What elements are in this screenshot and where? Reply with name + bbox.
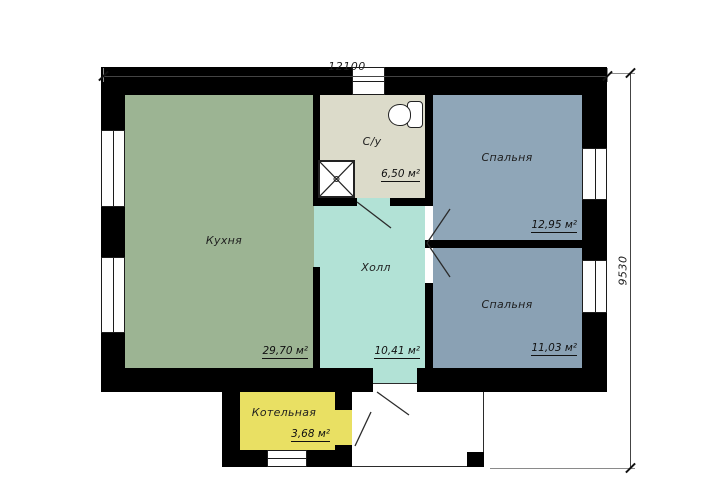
- door-swing-hall-entrance: [377, 392, 409, 415]
- wall-hall-bedrooms-lower: [425, 283, 433, 368]
- dimension-width: 12100: [307, 60, 387, 73]
- wall-bedroom-divider: [425, 240, 607, 248]
- door-swing-boiler: [355, 412, 371, 446]
- window-left-1: [101, 130, 125, 207]
- wall-bathroom-bottom-b: [390, 198, 433, 206]
- window-right-1: [582, 148, 607, 200]
- area-kitchen: 29,70 м²: [230, 345, 308, 357]
- doorway-threshold-line: [373, 383, 417, 384]
- wall-bathroom-bottom-a: [313, 198, 357, 206]
- hall-doorway-threshold: [373, 368, 417, 383]
- window-left-2: [101, 257, 125, 333]
- label-bedroom-top: Спальня: [457, 151, 557, 164]
- dimension-line-right: [630, 73, 631, 468]
- wall-kitchen-hall: [313, 267, 320, 368]
- ext-line-right-bottom: [490, 468, 635, 469]
- toilet-icon: [388, 104, 411, 126]
- area-bedroom-bottom: 11,03 м²: [499, 342, 577, 354]
- wall-boiler-right-b: [335, 445, 352, 467]
- area-hall: 10,41 м²: [342, 345, 420, 357]
- label-hall: Холл: [326, 261, 426, 274]
- wall-bottom-left: [101, 368, 373, 392]
- area-boiler: 3,68 м²: [262, 428, 330, 440]
- dimension-height: 9530: [617, 231, 630, 311]
- boiler-door-opening: [335, 410, 352, 445]
- wall-boiler-bottom-a: [222, 450, 267, 467]
- wall-left-2: [101, 207, 125, 257]
- floor-plan: Кухня С/у Спальня Спальня Холл Котельная…: [0, 0, 710, 502]
- label-bedroom-bottom: Спальня: [457, 298, 557, 311]
- wall-top-right: [385, 67, 607, 95]
- room-hall: [314, 198, 425, 368]
- wall-bottom-right: [417, 368, 607, 392]
- area-bathroom: 6,50 м²: [348, 168, 420, 180]
- label-kitchen: Кухня: [174, 234, 274, 247]
- label-boiler: Котельная: [234, 406, 334, 419]
- porch-bottom-line: [352, 466, 484, 467]
- wall-right-2: [582, 200, 607, 260]
- window-right-2: [582, 260, 607, 313]
- window-boiler: [267, 450, 307, 467]
- wall-bathroom-right: [425, 95, 433, 198]
- dimension-line-top: [103, 76, 607, 77]
- porch-pillar: [467, 452, 484, 467]
- label-bathroom: С/у: [342, 135, 402, 148]
- area-bedroom-top: 12,95 м²: [499, 219, 577, 231]
- room-kitchen: [125, 95, 314, 368]
- wall-boiler-right-a: [335, 392, 352, 410]
